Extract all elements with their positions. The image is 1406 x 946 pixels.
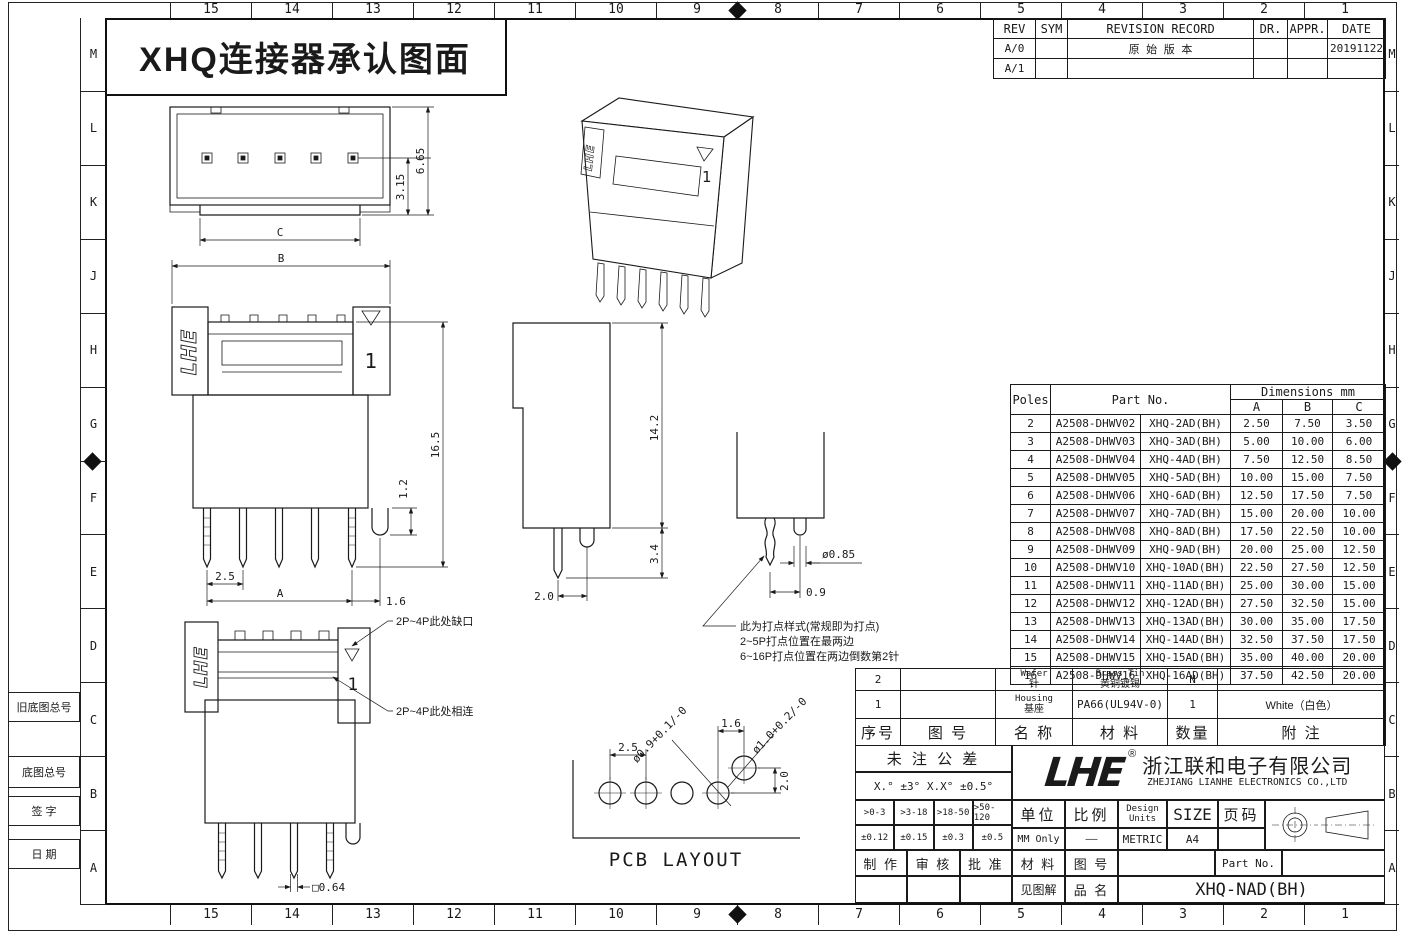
parts-row: 7 A2508-DHWV07 XHQ-7AD(BH) 15.00 20.00 1… xyxy=(1011,505,1386,523)
grid-row-label: L xyxy=(1385,92,1399,166)
tolerance-value-cell: ±0.15 xyxy=(894,825,933,850)
unit-value: MM Only xyxy=(1012,828,1065,850)
parts-row: 10 A2508-DHWV10 XHQ-10AD(BH) 22.50 27.50… xyxy=(1011,559,1386,577)
grid-row-label: E xyxy=(81,535,106,609)
bom-note: White（白色） xyxy=(1218,691,1386,719)
grid-col-label: 3 xyxy=(1142,905,1223,925)
grid-col-label: 11 xyxy=(494,2,575,18)
grid-row-label: D xyxy=(81,609,106,683)
revision-header-cell: APPR. xyxy=(1288,19,1328,39)
parts-cell-poles: 2 xyxy=(1011,415,1051,433)
margin-box-signature: 签 字 xyxy=(8,796,80,826)
parts-cell-c: 12.50 xyxy=(1333,559,1386,577)
parts-cell-partno2: XHQ-8AD(BH) xyxy=(1141,523,1231,541)
tolerance-value-cell: ±0.12 xyxy=(855,825,894,850)
parts-cell-partno2: XHQ-4AD(BH) xyxy=(1141,451,1231,469)
bom-header-cell: 材 料 xyxy=(1073,719,1168,746)
parts-header-dim-col: B xyxy=(1283,400,1333,415)
parts-cell-c: 7.50 xyxy=(1333,487,1386,505)
parts-cell-poles: 5 xyxy=(1011,469,1051,487)
signoff-label-cell: 批 准 xyxy=(960,850,1012,876)
tolerance-range-cell: >3-18 xyxy=(894,800,933,825)
bom-row: 2 Wafer针 Brass Tin黄铜镀锡 N xyxy=(856,669,1386,691)
parts-cell-a: 25.00 xyxy=(1231,577,1283,595)
parts-cell-c: 6.00 xyxy=(1333,433,1386,451)
parts-cell-partno2: XHQ-6AD(BH) xyxy=(1141,487,1231,505)
grid-col-label: 7 xyxy=(818,2,899,18)
company-logo: LHE xyxy=(1043,753,1125,793)
revision-cell xyxy=(1288,39,1328,59)
grid-col-label: 11 xyxy=(494,905,575,925)
grid-row-label: M xyxy=(81,18,106,92)
signoff-blank xyxy=(960,876,1012,903)
grid-col-label: 13 xyxy=(332,905,413,925)
revision-row: A/1 xyxy=(994,59,1386,79)
grid-row-label: G xyxy=(81,388,106,462)
parts-cell-a: 35.00 xyxy=(1231,649,1283,667)
grid-row-label: L xyxy=(81,92,106,166)
revision-cell: 原 始 版 本 xyxy=(1068,39,1254,59)
parts-cell-partno1: A2508-DHWV06 xyxy=(1051,487,1141,505)
company-banner: LHE ® 浙江联和电子有限公司 ZHEJIANG LIANHE ELECTRO… xyxy=(1012,745,1385,800)
parts-cell-partno1: A2508-DHWV13 xyxy=(1051,613,1141,631)
tolerance-ranges: >0-3>3-18>18-50>50-120 xyxy=(855,800,1012,825)
bom-qty: N xyxy=(1168,669,1218,691)
bom-material: Brass Tin黄铜镀锡 xyxy=(1073,669,1168,691)
parts-cell-c: 15.00 xyxy=(1333,577,1386,595)
parts-cell-partno1: A2508-DHWV10 xyxy=(1051,559,1141,577)
parts-cell-poles: 4 xyxy=(1011,451,1051,469)
bom-note xyxy=(1218,669,1386,691)
parts-cell-poles: 12 xyxy=(1011,595,1051,613)
parts-cell-c: 17.50 xyxy=(1333,613,1386,631)
grid-col-label: 12 xyxy=(413,905,494,925)
parts-cell-partno2: XHQ-3AD(BH) xyxy=(1141,433,1231,451)
grid-row-label: C xyxy=(81,683,106,757)
grid-col-label: 4 xyxy=(1061,2,1142,18)
product-label: 品 名 xyxy=(1065,876,1118,903)
parts-cell-a: 17.50 xyxy=(1231,523,1283,541)
parts-cell-partno2: XHQ-11AD(BH) xyxy=(1141,577,1231,595)
bom-name-cn: 基座 xyxy=(996,704,1072,715)
margin-box-date: 日 期 xyxy=(8,839,80,869)
bom-name-cn: 针 xyxy=(996,679,1072,690)
parts-cell-b: 10.00 xyxy=(1283,433,1333,451)
parts-row: 12 A2508-DHWV12 XHQ-12AD(BH) 27.50 32.50… xyxy=(1011,595,1386,613)
parts-row: 4 A2508-DHWV04 XHQ-4AD(BH) 7.50 12.50 8.… xyxy=(1011,451,1386,469)
grid-row-label: H xyxy=(81,314,106,388)
margin-box-old-master-no: 旧底图总号 xyxy=(8,692,80,722)
parts-cell-partno2: XHQ-14AD(BH) xyxy=(1141,631,1231,649)
product-value: XHQ-NAD(BH) xyxy=(1118,876,1385,903)
parts-cell-c: 3.50 xyxy=(1333,415,1386,433)
parts-cell-c: 15.00 xyxy=(1333,595,1386,613)
parts-cell-b: 15.00 xyxy=(1283,469,1333,487)
parts-cell-a: 27.50 xyxy=(1231,595,1283,613)
parts-row: 11 A2508-DHWV11 XHQ-11AD(BH) 25.00 30.00… xyxy=(1011,577,1386,595)
grid-row-label: J xyxy=(81,240,106,314)
parts-cell-c: 10.00 xyxy=(1333,523,1386,541)
bom-fig xyxy=(901,691,996,719)
bom-header-cell: 名 称 xyxy=(996,719,1073,746)
tolerance-value-cell: ±0.5 xyxy=(973,825,1012,850)
parts-cell-b: 22.50 xyxy=(1283,523,1333,541)
parts-cell-c: 10.00 xyxy=(1333,505,1386,523)
parts-cell-c: 12.50 xyxy=(1333,541,1386,559)
company-name-en: ZHEJIANG LIANHE ELECTRONICS CO.,LTD xyxy=(1147,778,1347,788)
grid-col-label: 9 xyxy=(656,905,737,925)
grid-col-label: 8 xyxy=(737,905,818,925)
bom-qty: 1 xyxy=(1168,691,1218,719)
part-no-label: Part No. xyxy=(1215,850,1282,876)
parts-cell-a: 22.50 xyxy=(1231,559,1283,577)
parts-row: 13 A2508-DHWV13 XHQ-13AD(BH) 30.00 35.00… xyxy=(1011,613,1386,631)
fig-no-value xyxy=(1118,850,1215,876)
grid-col-label: 1 xyxy=(1304,2,1385,18)
parts-cell-poles: 8 xyxy=(1011,523,1051,541)
revision-header-cell: SYM xyxy=(1036,19,1068,39)
grid-col-label: 10 xyxy=(575,905,656,925)
parts-cell-partno2: XHQ-12AD(BH) xyxy=(1141,595,1231,613)
parts-cell-poles: 9 xyxy=(1011,541,1051,559)
grid-row-label: F xyxy=(1385,462,1399,536)
parts-cell-a: 15.00 xyxy=(1231,505,1283,523)
parts-cell-partno1: A2508-DHWV07 xyxy=(1051,505,1141,523)
parts-cell-b: 12.50 xyxy=(1283,451,1333,469)
size-label: SIZE xyxy=(1167,800,1218,828)
bom-name: Wafer针 xyxy=(996,669,1073,691)
parts-cell-partno2: XHQ-2AD(BH) xyxy=(1141,415,1231,433)
sheet-title: XHQ连接器承认图面 xyxy=(105,18,507,96)
parts-row: 9 A2508-DHWV09 XHQ-9AD(BH) 20.00 25.00 1… xyxy=(1011,541,1386,559)
first-angle-projection-icon xyxy=(1266,801,1384,849)
parts-cell-c: 7.50 xyxy=(1333,469,1386,487)
bom-fig xyxy=(901,669,996,691)
parts-cell-partno1: A2508-DHWV15 xyxy=(1051,649,1141,667)
parts-cell-a: 12.50 xyxy=(1231,487,1283,505)
parts-cell-a: 2.50 xyxy=(1231,415,1283,433)
parts-cell-b: 20.00 xyxy=(1283,505,1333,523)
bom-name-en: Housing xyxy=(996,694,1072,704)
grid-row-label: C xyxy=(1385,683,1399,757)
grid-row-label: H xyxy=(1385,314,1399,388)
grid-col-label: 15 xyxy=(170,905,251,925)
tolerance-range-cell: >18-50 xyxy=(934,800,973,825)
parts-cell-a: 10.00 xyxy=(1231,469,1283,487)
revision-cell xyxy=(1036,59,1068,79)
bom-material: PA66(UL94V-0) xyxy=(1073,691,1168,719)
size-value: A4 xyxy=(1167,828,1218,850)
grid-row-label: K xyxy=(1385,166,1399,240)
revision-cell xyxy=(1288,59,1328,79)
parts-cell-partno2: XHQ-7AD(BH) xyxy=(1141,505,1231,523)
parts-cell-a: 30.00 xyxy=(1231,613,1283,631)
bom-no: 2 xyxy=(856,669,901,691)
parts-cell-poles: 7 xyxy=(1011,505,1051,523)
parts-cell-b: 25.00 xyxy=(1283,541,1333,559)
bom-header-cell: 附 注 xyxy=(1218,719,1386,746)
bom-row: 1 Housing基座 PA66(UL94V-0) 1 White（白色） xyxy=(856,691,1386,719)
tolerance-angles: X.° ±3° X.X° ±0.5° xyxy=(855,772,1012,800)
grid-col-label: 6 xyxy=(899,2,980,18)
parts-cell-b: 7.50 xyxy=(1283,415,1333,433)
revision-header-cell: DATE xyxy=(1328,19,1386,39)
revision-row: A/0 原 始 版 本 20191122 xyxy=(994,39,1386,59)
parts-cell-poles: 13 xyxy=(1011,613,1051,631)
parts-row: 2 A2508-DHWV02 XHQ-2AD(BH) 2.50 7.50 3.5… xyxy=(1011,415,1386,433)
parts-header-dim-col: C xyxy=(1333,400,1386,415)
margin-box-master-no: 底图总号 xyxy=(8,756,80,788)
grid-row-label: M xyxy=(1385,18,1399,92)
company-name-cn: 浙江联和电子有限公司 xyxy=(1142,757,1352,778)
parts-cell-partno2: XHQ-5AD(BH) xyxy=(1141,469,1231,487)
revision-cell xyxy=(1068,59,1254,79)
signoff-blanks xyxy=(855,876,1012,903)
parts-cell-b: 17.50 xyxy=(1283,487,1333,505)
parts-cell-poles: 15 xyxy=(1011,649,1051,667)
parts-header-partno: Part No. xyxy=(1051,385,1231,415)
parts-cell-c: 20.00 xyxy=(1333,649,1386,667)
bom-table: 2 Wafer针 Brass Tin黄铜镀锡 N 1 Housing基座 PA6… xyxy=(855,668,1386,746)
grid-col-label: 4 xyxy=(1061,905,1142,925)
parts-cell-c: 17.50 xyxy=(1333,631,1386,649)
bom-mat-en: Brass Tin xyxy=(1073,669,1167,679)
grid-col-label: 2 xyxy=(1223,905,1304,925)
grid-col-label: 9 xyxy=(656,2,737,18)
registered-mark: ® xyxy=(1128,748,1136,760)
revision-cell: 20191122 xyxy=(1328,39,1386,59)
signoff-label-cell: 制 作 xyxy=(855,850,907,876)
parts-row: 5 A2508-DHWV05 XHQ-5AD(BH) 10.00 15.00 7… xyxy=(1011,469,1386,487)
projection-symbol-box xyxy=(1265,800,1385,850)
parts-cell-poles: 6 xyxy=(1011,487,1051,505)
scale-label: 比例 xyxy=(1065,800,1118,828)
grid-col-label: 14 xyxy=(251,2,332,18)
grid-row-label: B xyxy=(81,757,106,831)
signoff-labels: 制 作审 核批 准 xyxy=(855,850,1012,876)
title-block: 未 注 公 差 X.° ±3° X.X° ±0.5° >0-3>3-18>18-… xyxy=(855,745,1385,903)
grid-col-label: 5 xyxy=(980,2,1061,18)
unit-label: 单位 xyxy=(1012,800,1065,828)
parts-cell-partno2: XHQ-15AD(BH) xyxy=(1141,649,1231,667)
grid-row-label: D xyxy=(1385,609,1399,683)
grid-row-label: A xyxy=(1385,831,1399,905)
grid-row-label: J xyxy=(1385,240,1399,314)
fig-no-label: 图 号 xyxy=(1065,850,1118,876)
parts-cell-partno1: A2508-DHWV12 xyxy=(1051,595,1141,613)
bom-name-en: Wafer xyxy=(996,669,1072,679)
design-label: Design xyxy=(1126,804,1159,814)
parts-cell-b: 30.00 xyxy=(1283,577,1333,595)
parts-cell-a: 5.00 xyxy=(1231,433,1283,451)
design-units-label: Design Units xyxy=(1118,800,1167,828)
company-names: 浙江联和电子有限公司 ZHEJIANG LIANHE ELECTRONICS C… xyxy=(1142,757,1352,788)
parts-cell-partno1: A2508-DHWV09 xyxy=(1051,541,1141,559)
parts-cell-c: 8.50 xyxy=(1333,451,1386,469)
tolerance-range-cell: >0-3 xyxy=(855,800,894,825)
revision-table: REVSYMREVISION RECORDDR.APPR.DATE A/0 原 … xyxy=(993,18,1386,79)
tolerance-range-cell: >50-120 xyxy=(973,800,1012,825)
grid-col-label: 7 xyxy=(818,905,899,925)
signoff-label-cell: 审 核 xyxy=(907,850,959,876)
parts-cell-b: 40.00 xyxy=(1283,649,1333,667)
revision-cell xyxy=(1254,39,1288,59)
parts-row: 15 A2508-DHWV15 XHQ-15AD(BH) 35.00 40.00… xyxy=(1011,649,1386,667)
parts-cell-a: 7.50 xyxy=(1231,451,1283,469)
grid-band-bottom: 151413121110987654321 xyxy=(170,905,1385,925)
grid-row-label: K xyxy=(81,166,106,240)
bom-header-cell: 图 号 xyxy=(901,719,996,746)
parts-cell-partno2: XHQ-10AD(BH) xyxy=(1141,559,1231,577)
revision-cell: A/1 xyxy=(994,59,1036,79)
parts-cell-poles: 11 xyxy=(1011,577,1051,595)
parts-header-dim-col: A xyxy=(1231,400,1283,415)
grid-row-label: B xyxy=(1385,757,1399,831)
drawing-sheet: 151413121110987654321 151413121110987654… xyxy=(0,0,1406,946)
grid-col-label: 2 xyxy=(1223,2,1304,18)
parts-cell-poles: 10 xyxy=(1011,559,1051,577)
scale-value: —— xyxy=(1065,828,1118,850)
parts-row: 14 A2508-DHWV14 XHQ-14AD(BH) 32.50 37.50… xyxy=(1011,631,1386,649)
grid-row-label: A xyxy=(81,831,106,905)
revision-cell xyxy=(1254,59,1288,79)
page-label: 页码 xyxy=(1218,800,1265,828)
revision-header-cell: DR. xyxy=(1254,19,1288,39)
bom-mat-cn: 黄铜镀锡 xyxy=(1073,679,1167,690)
grid-col-label: 10 xyxy=(575,2,656,18)
revision-cell xyxy=(1036,39,1068,59)
parts-cell-partno1: A2508-DHWV08 xyxy=(1051,523,1141,541)
parts-row: 8 A2508-DHWV08 XHQ-8AD(BH) 17.50 22.50 1… xyxy=(1011,523,1386,541)
grid-row-label: F xyxy=(81,462,106,536)
grid-col-label: 1 xyxy=(1304,905,1385,925)
parts-cell-poles: 14 xyxy=(1011,631,1051,649)
parts-cell-partno1: A2508-DHWV14 xyxy=(1051,631,1141,649)
parts-cell-b: 32.50 xyxy=(1283,595,1333,613)
grid-col-label: 12 xyxy=(413,2,494,18)
grid-row-label: G xyxy=(1385,388,1399,462)
revision-cell xyxy=(1328,59,1386,79)
units-label: Units xyxy=(1129,814,1156,824)
signoff-blank xyxy=(907,876,959,903)
parts-cell-poles: 3 xyxy=(1011,433,1051,451)
design-units-value: METRIC xyxy=(1118,828,1167,850)
parts-cell-partno1: A2508-DHWV02 xyxy=(1051,415,1141,433)
parts-cell-partno2: XHQ-13AD(BH) xyxy=(1141,613,1231,631)
parts-cell-partno1: A2508-DHWV11 xyxy=(1051,577,1141,595)
parts-row: 6 A2508-DHWV06 XHQ-6AD(BH) 12.50 17.50 7… xyxy=(1011,487,1386,505)
parts-cell-b: 27.50 xyxy=(1283,559,1333,577)
material-value: 见图解 xyxy=(1012,876,1065,903)
tolerance-value-cell: ±0.3 xyxy=(934,825,973,850)
part-no-value xyxy=(1282,850,1385,876)
page-value xyxy=(1218,828,1265,850)
parts-header-dims: Dimensions mm xyxy=(1231,385,1386,400)
bom-header-cell: 序号 xyxy=(856,719,901,746)
parts-dimension-table: Poles Part No. Dimensions mm ABC 2 A2508… xyxy=(1010,384,1386,685)
parts-cell-a: 20.00 xyxy=(1231,541,1283,559)
parts-header-poles: Poles xyxy=(1011,385,1051,415)
grid-col-label: 6 xyxy=(899,905,980,925)
parts-cell-a: 32.50 xyxy=(1231,631,1283,649)
tolerance-title: 未 注 公 差 xyxy=(855,745,1012,772)
parts-row: 3 A2508-DHWV03 XHQ-3AD(BH) 5.00 10.00 6.… xyxy=(1011,433,1386,451)
parts-cell-b: 35.00 xyxy=(1283,613,1333,631)
parts-cell-partno1: A2508-DHWV04 xyxy=(1051,451,1141,469)
tolerance-values: ±0.12±0.15±0.3±0.5 xyxy=(855,825,1012,850)
grid-col-label: 14 xyxy=(251,905,332,925)
revision-header-cell: REVISION RECORD xyxy=(1068,19,1254,39)
bom-name: Housing基座 xyxy=(996,691,1073,719)
parts-cell-b: 37.50 xyxy=(1283,631,1333,649)
grid-col-label: 5 xyxy=(980,905,1061,925)
grid-col-label: 15 xyxy=(170,2,251,18)
signoff-blank xyxy=(855,876,907,903)
grid-band-top: 151413121110987654321 xyxy=(170,2,1385,18)
grid-row-label: E xyxy=(1385,535,1399,609)
material-label: 材 料 xyxy=(1012,850,1065,876)
bom-no: 1 xyxy=(856,691,901,719)
revision-cell: A/0 xyxy=(994,39,1036,59)
grid-col-label: 8 xyxy=(737,2,818,18)
parts-cell-partno2: XHQ-9AD(BH) xyxy=(1141,541,1231,559)
grid-col-label: 13 xyxy=(332,2,413,18)
revision-header-cell: REV xyxy=(994,19,1036,39)
parts-cell-partno1: A2508-DHWV03 xyxy=(1051,433,1141,451)
grid-col-label: 3 xyxy=(1142,2,1223,18)
parts-cell-partno1: A2508-DHWV05 xyxy=(1051,469,1141,487)
bom-header-cell: 数量 xyxy=(1168,719,1218,746)
